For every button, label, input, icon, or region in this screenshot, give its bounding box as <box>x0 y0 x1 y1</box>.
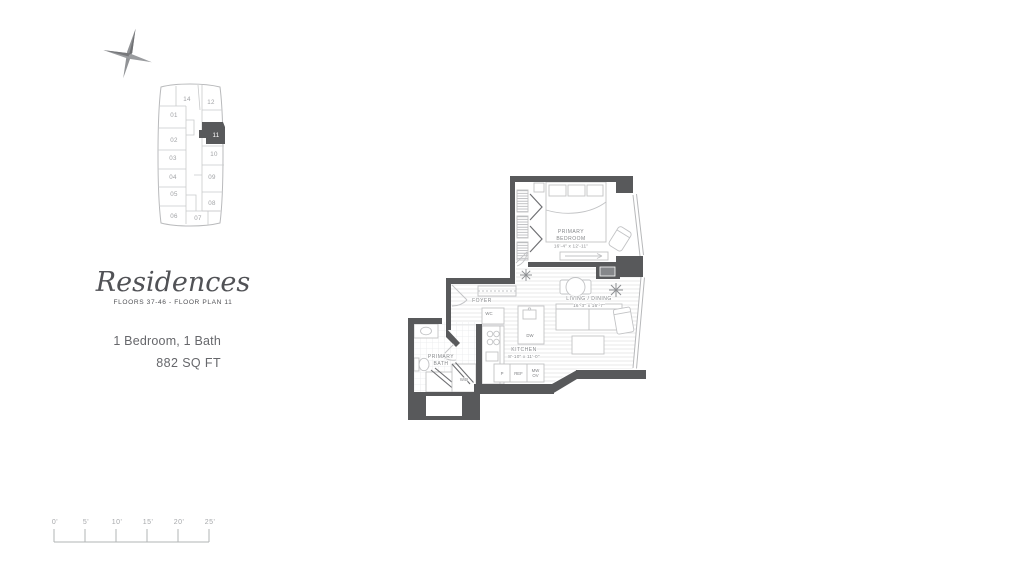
scale-bar: 0' 5' 10' 15' 20' 25' <box>44 515 216 549</box>
keyplan-unit-label: 03 <box>169 155 177 162</box>
pillow <box>568 185 585 196</box>
coffee-table <box>572 336 604 354</box>
keyplan-unit-label: 14 <box>183 96 191 103</box>
pillow <box>549 185 566 196</box>
keyplan-unit-label: 07 <box>194 215 202 222</box>
room-label: KITCHEN <box>511 347 536 353</box>
toilet-tank <box>414 358 419 371</box>
vanity-sink <box>421 327 432 335</box>
scale-ticks <box>54 529 209 542</box>
unit-area: 882 SQ FT <box>21 356 221 370</box>
room-label: LIVING / DINING <box>566 296 612 302</box>
scale-label: 5' <box>83 519 89 526</box>
residences-title: Residences <box>93 269 253 296</box>
unit-configuration: 1 Bedroom, 1 Bath <box>21 334 221 348</box>
cooktop-burner <box>494 339 500 345</box>
scale-label: 15' <box>143 519 154 526</box>
scale-label: 25' <box>205 519 216 526</box>
pillow <box>587 185 603 196</box>
keyplan-unit-label: 10 <box>210 151 218 158</box>
plant-icon <box>609 283 623 297</box>
keyplan-unit-label: 09 <box>208 174 216 181</box>
cooktop-burner <box>487 339 493 345</box>
room-label: PRIMARY <box>428 354 454 360</box>
fixture-label: WC <box>485 311 492 316</box>
scale-label: 0' <box>52 519 58 526</box>
room-dims: 16'-4" x 12'-11" <box>554 244 588 249</box>
kitchen-sink <box>486 352 498 361</box>
keyplan-unit-label: 06 <box>170 213 178 220</box>
room-label: BATH <box>434 361 449 367</box>
cooktop-burner <box>494 331 500 337</box>
compass-icon <box>102 27 156 83</box>
fixture-label: W/D <box>460 377 468 382</box>
scale-label: 10' <box>112 519 123 526</box>
keyplan-unit-label: 02 <box>170 137 178 144</box>
keyplan-unit-label: 12 <box>207 99 215 106</box>
toilet <box>419 358 429 370</box>
media-console-inner <box>600 267 615 276</box>
floor-plan: PRIMARY BEDROOM 16'-4" x 12'-11" LIVING … <box>405 172 653 424</box>
keyplan-unit-label: 05 <box>170 191 178 198</box>
fixture-label: REF <box>514 371 523 376</box>
faucet <box>528 308 530 310</box>
cooktop-burner <box>487 331 493 337</box>
floorplan-subtitle: FLOORS 37-46 - FLOOR PLAN 11 <box>93 299 253 306</box>
island-sink <box>523 310 536 319</box>
fixture-label: DW <box>526 333 534 338</box>
armchair-living <box>613 307 634 335</box>
room-dims: 16'-3" x 16'-7" <box>573 303 605 308</box>
brand-block: Residences FLOORS 37-46 - FLOOR PLAN 11 <box>93 269 253 306</box>
room-label: PRIMARY <box>558 229 584 235</box>
dining-table <box>566 278 585 297</box>
keyplan: 14 12 01 02 03 04 05 06 07 08 09 10 11 <box>152 80 228 230</box>
closet-door-chevrons <box>530 194 542 252</box>
keyplan-unit-label: 04 <box>169 174 177 181</box>
keyplan-unit-label: 08 <box>208 200 216 207</box>
fixture-label: P <box>501 371 504 376</box>
keyplan-unit-label: 01 <box>170 112 178 119</box>
room-label: BEDROOM <box>556 236 585 242</box>
room-label: FOYER <box>472 298 492 304</box>
room-dims: 8'-10" x 11'-0" <box>508 354 540 359</box>
plant-icon <box>520 269 532 281</box>
nightstand <box>534 183 544 192</box>
fixture-label: OV <box>532 373 538 378</box>
armchair-bedroom <box>608 226 632 253</box>
scale-label: 20' <box>174 519 185 526</box>
keyplan-highlighted-unit-label: 11 <box>212 132 219 139</box>
